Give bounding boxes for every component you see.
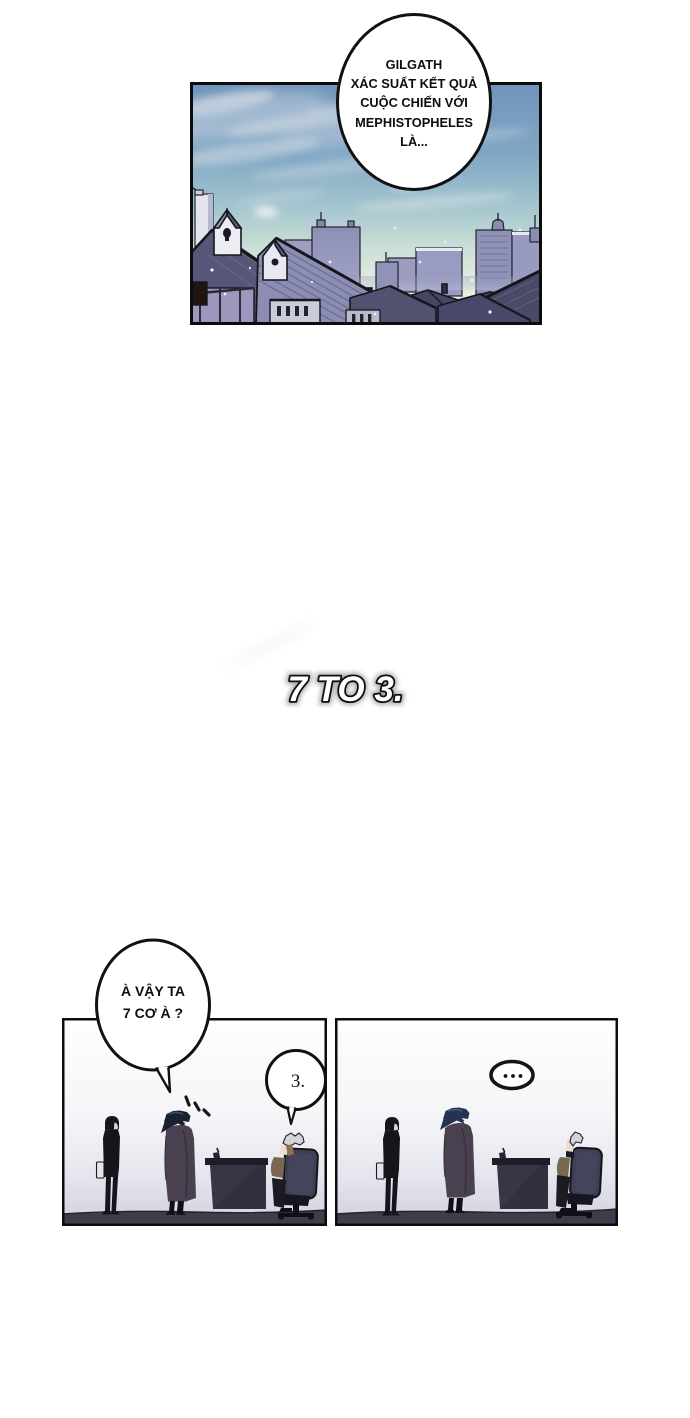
- svg-text:3.: 3.: [291, 1071, 305, 1092]
- svg-text:7 TO 3.: 7 TO 3.: [287, 670, 403, 709]
